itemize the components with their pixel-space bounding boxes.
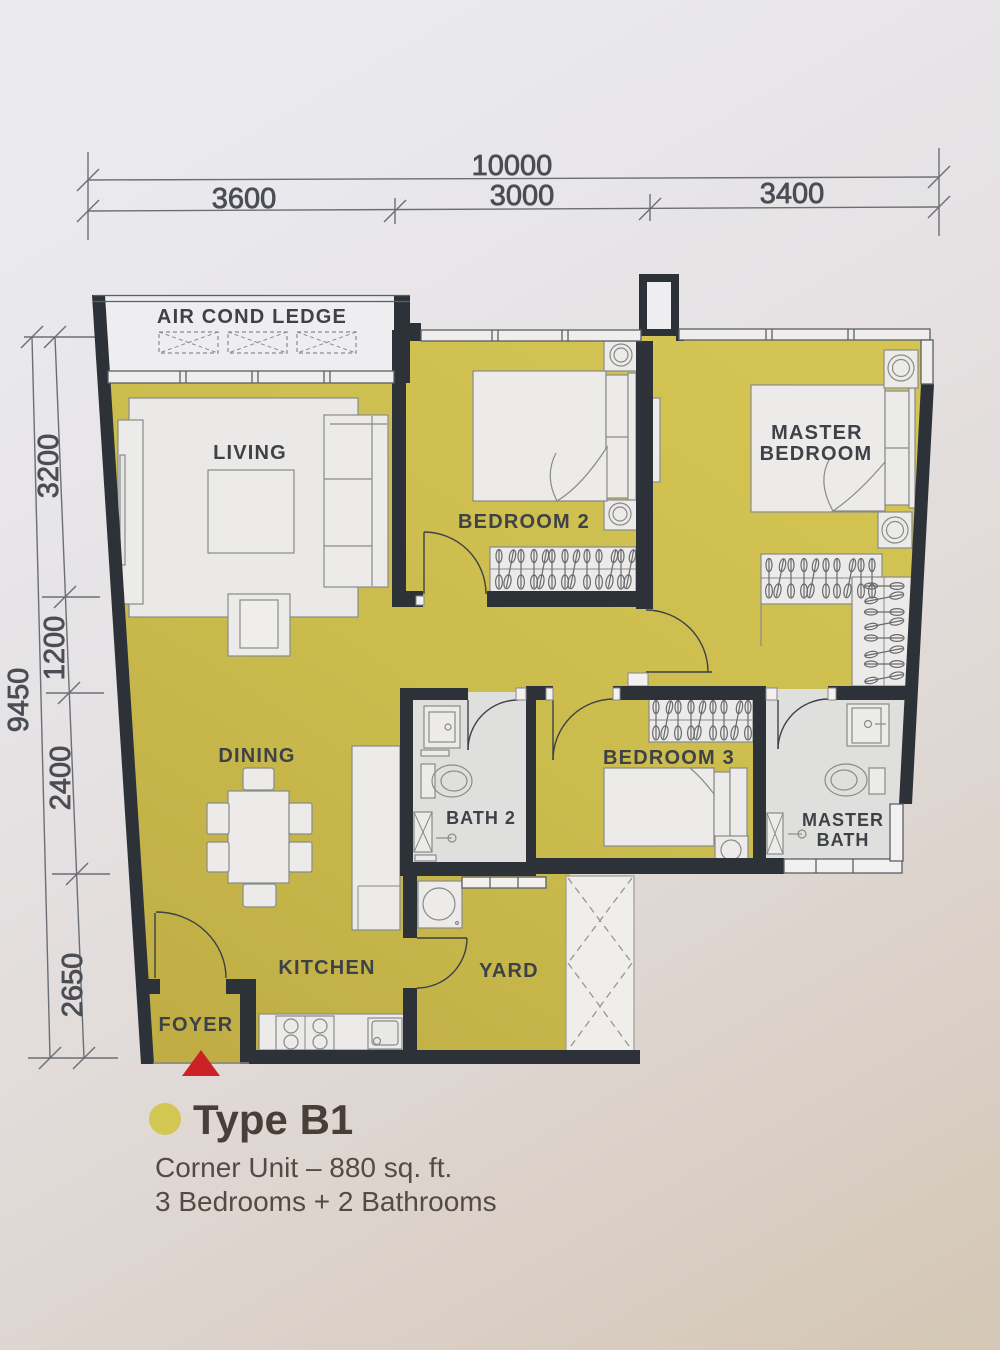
svg-text:1200: 1200	[39, 616, 71, 681]
svg-text:3400: 3400	[760, 178, 825, 210]
svg-text:KITCHEN: KITCHEN	[278, 957, 375, 979]
svg-text:AIR COND LEDGE: AIR COND LEDGE	[157, 306, 347, 328]
svg-text:BEDROOM: BEDROOM	[760, 443, 873, 465]
svg-text:MASTER: MASTER	[802, 810, 884, 830]
svg-text:3600: 3600	[212, 183, 277, 215]
svg-text:DINING: DINING	[218, 745, 295, 767]
svg-text:FOYER: FOYER	[159, 1014, 234, 1036]
svg-text:2650: 2650	[57, 953, 89, 1018]
svg-text:3000: 3000	[490, 180, 555, 212]
svg-text:BEDROOM 3: BEDROOM 3	[603, 747, 735, 769]
svg-text:3200: 3200	[33, 434, 65, 499]
svg-text:3 Bedrooms + 2 Bathrooms: 3 Bedrooms + 2 Bathrooms	[155, 1186, 497, 1217]
svg-text:2400: 2400	[45, 746, 77, 811]
svg-text:LIVING: LIVING	[213, 442, 287, 464]
svg-text:MASTER: MASTER	[771, 422, 863, 444]
svg-text:Corner Unit – 880 sq. ft.: Corner Unit – 880 sq. ft.	[155, 1152, 452, 1183]
svg-text:Type B1: Type B1	[193, 1096, 353, 1143]
svg-text:9450: 9450	[3, 668, 35, 733]
svg-text:BEDROOM 2: BEDROOM 2	[458, 511, 590, 533]
svg-text:BATH: BATH	[817, 830, 870, 850]
svg-text:YARD: YARD	[479, 960, 539, 982]
svg-text:BATH 2: BATH 2	[446, 808, 516, 828]
svg-text:10000: 10000	[472, 150, 553, 182]
